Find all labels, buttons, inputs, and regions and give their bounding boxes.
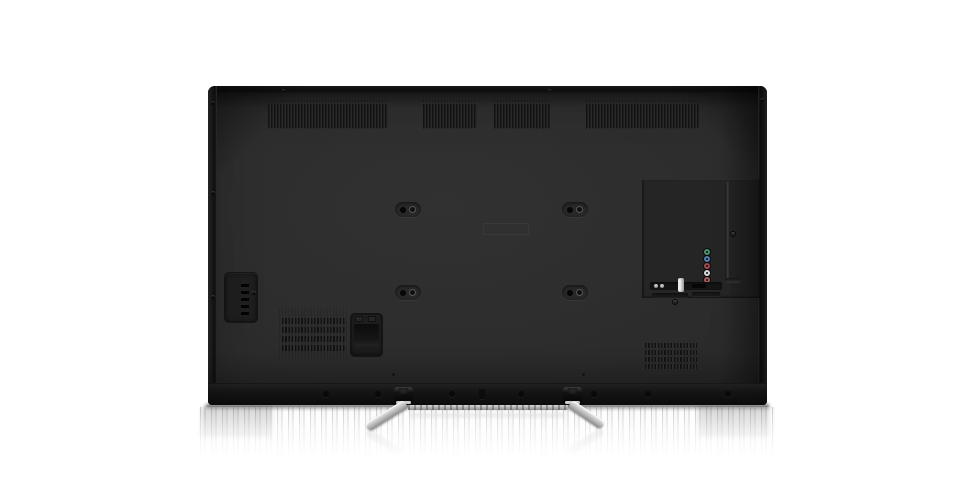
top-edge-screw <box>282 89 285 92</box>
bracket-notch <box>399 388 408 395</box>
grille-row <box>645 364 697 369</box>
bottom-port-bar <box>650 282 722 290</box>
antenna-jack <box>678 278 684 292</box>
bottom-screw-hole <box>518 391 524 397</box>
grille-row <box>282 336 345 342</box>
pinhole <box>392 373 395 376</box>
vesa-hole <box>400 290 406 296</box>
bottom-edge-band <box>208 383 767 405</box>
grille-row <box>282 345 345 351</box>
component-y-jack <box>704 249 710 255</box>
top-vent-grille-4 <box>586 104 699 129</box>
panel-groove <box>652 293 688 297</box>
vesa-mount-holes-bottom-right <box>562 285 588 300</box>
molded-label-recess <box>483 223 529 235</box>
floor-reflection <box>200 407 775 463</box>
vesa-hole <box>567 207 573 213</box>
bottom-screw-hole <box>449 391 455 397</box>
top-vent-grille-1 <box>268 104 388 129</box>
grille-row <box>645 350 697 355</box>
side-panel-screw <box>252 291 256 295</box>
vesa-screw <box>576 206 583 213</box>
bottom-screw-hole <box>725 391 731 397</box>
reflection-fade <box>200 407 775 463</box>
component-pb-jack <box>704 256 710 262</box>
below-panel-screw <box>672 299 678 305</box>
ac-inlet-tab <box>355 316 363 322</box>
vesa-mount-holes-top-left <box>395 202 421 217</box>
speaker-grille-left <box>282 318 345 354</box>
top-vent-grille-2 <box>423 104 477 129</box>
vesa-screw <box>576 289 583 296</box>
ac-inlet-tab <box>368 316 376 322</box>
grille-row <box>282 327 345 333</box>
grille-row <box>645 357 697 362</box>
vesa-mount-holes-bottom-left <box>395 285 421 300</box>
ac-inlet-opening <box>354 324 379 346</box>
side-ports-panel <box>225 273 257 322</box>
component-pr-jack <box>704 263 710 269</box>
bracket-notch <box>568 388 577 395</box>
jack-hole <box>706 258 708 260</box>
vesa-screw <box>409 206 416 213</box>
connector-panel-screw <box>730 231 736 237</box>
connector-panel <box>642 179 760 298</box>
jack-hole <box>706 265 708 267</box>
bottom-center-slot <box>479 389 485 399</box>
left-edge-screw <box>211 101 215 105</box>
vesa-mount-holes-top-right <box>562 202 588 217</box>
vesa-screw <box>409 289 416 296</box>
grille-row <box>645 343 697 348</box>
jack-hole <box>706 251 708 253</box>
usb-pin <box>660 284 664 288</box>
jack-hole <box>706 279 708 281</box>
speaker-grille-right <box>645 343 697 371</box>
left-edge-screw <box>211 295 215 299</box>
connector-panel-ridge-bend <box>725 278 741 283</box>
bottom-screw-hole <box>591 391 597 397</box>
pinhole <box>582 373 585 376</box>
bottom-screw-hole <box>323 391 329 397</box>
port-slot <box>692 284 706 288</box>
panel-groove <box>692 292 720 296</box>
top-vent-grille-3 <box>494 104 550 129</box>
side-ports-strip <box>241 280 249 316</box>
top-edge-screw <box>548 89 551 92</box>
ac-inlet-housing <box>350 313 383 357</box>
bottom-screw-hole <box>375 391 381 397</box>
product-photo-stage <box>0 0 976 490</box>
left-edge-screw <box>211 191 215 195</box>
usb-pin <box>654 284 658 288</box>
vesa-hole <box>567 290 573 296</box>
audio-left-jack <box>704 270 710 276</box>
jack-hole <box>706 272 708 274</box>
grille-row <box>282 318 345 324</box>
right-edge-screw <box>760 98 764 102</box>
tv-rear-panel <box>208 86 767 405</box>
vesa-hole <box>400 207 406 213</box>
bottom-screw-hole <box>645 391 651 397</box>
